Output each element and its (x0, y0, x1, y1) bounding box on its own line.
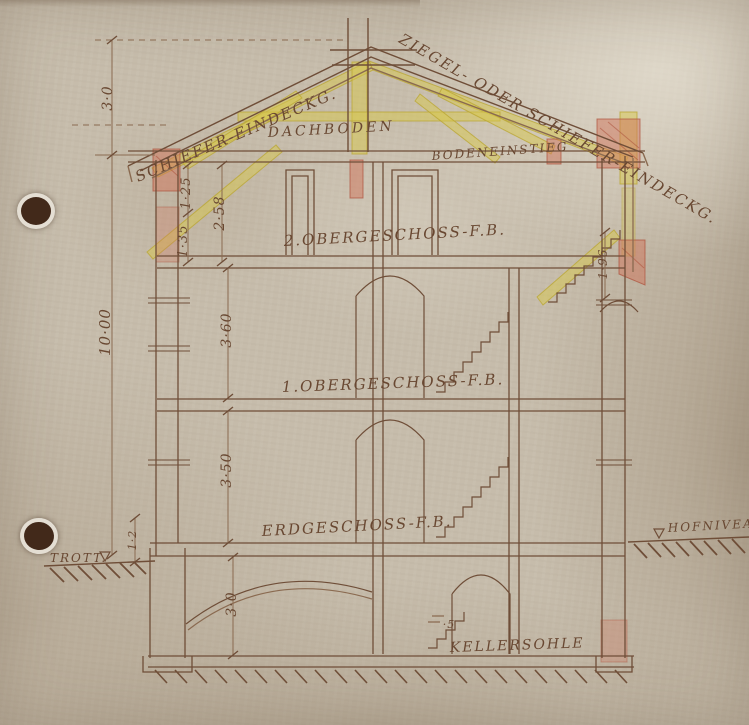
dim-attic-upper: 1·25 (179, 177, 194, 210)
attic-post-masonry (350, 160, 363, 198)
right-wall-niche-arch (600, 301, 638, 312)
cellar-vault-inner (188, 589, 372, 630)
dim-cellar-height: 3·0 (224, 591, 240, 616)
dim-floor2-height: 3·60 (219, 312, 235, 347)
right-eave-drop (643, 153, 648, 166)
label-floor2: 2.OBERGESCHOSS-F.B. (282, 220, 506, 250)
dim-stair-height: 1·96 (596, 249, 610, 280)
dim-floor1-height: 3·50 (219, 452, 235, 487)
scanned-blueprint-page: SCHIEFER-EINDECKG. ZIEGEL- ODER SCHIEFER… (0, 0, 749, 725)
label-sidewalk: TROTT. (50, 551, 107, 565)
label-cellar: KELLERSOHLE (449, 635, 585, 656)
dim-attic-total: 2·58 (212, 195, 228, 231)
yard-hatch (634, 539, 745, 558)
arches (186, 276, 638, 654)
yard-line (628, 537, 749, 542)
dim-overall-height: 10·00 (96, 308, 114, 356)
cellar-vault (186, 581, 372, 624)
cellar-step-marks (428, 616, 444, 622)
dim-cellar-step: ·5 (443, 618, 456, 631)
label-roof-right: ZIEGEL- ODER SCHIEFER-EINDECKG. (395, 29, 721, 227)
subfloor-hatch (155, 670, 627, 683)
dim-roof-height: 3·0 (100, 85, 116, 110)
labels: SCHIEFER-EINDECKG. ZIEGEL- ODER SCHIEFER… (50, 29, 749, 656)
label-yard-level: HOFNIVEAU (666, 516, 749, 535)
right-wall-masonry (619, 240, 645, 285)
tie-left-2 (148, 346, 190, 351)
left-eave-drop (128, 166, 132, 182)
left-footing (143, 656, 192, 672)
dim-sidewalk-offset: 1·2 (126, 530, 139, 551)
tie-left-3 (148, 460, 190, 465)
stairs (428, 230, 620, 648)
tie-left-1 (148, 298, 190, 303)
level-mark-yard (654, 529, 664, 538)
label-floor1: 1.OBERGESCHOSS-F.B. (282, 370, 505, 396)
punch-hole-top (17, 193, 55, 229)
dim-attic-lower: 1·35 (176, 225, 191, 258)
section-drawing: SCHIEFER-EINDECKG. ZIEGEL- ODER SCHIEFER… (0, 0, 749, 725)
